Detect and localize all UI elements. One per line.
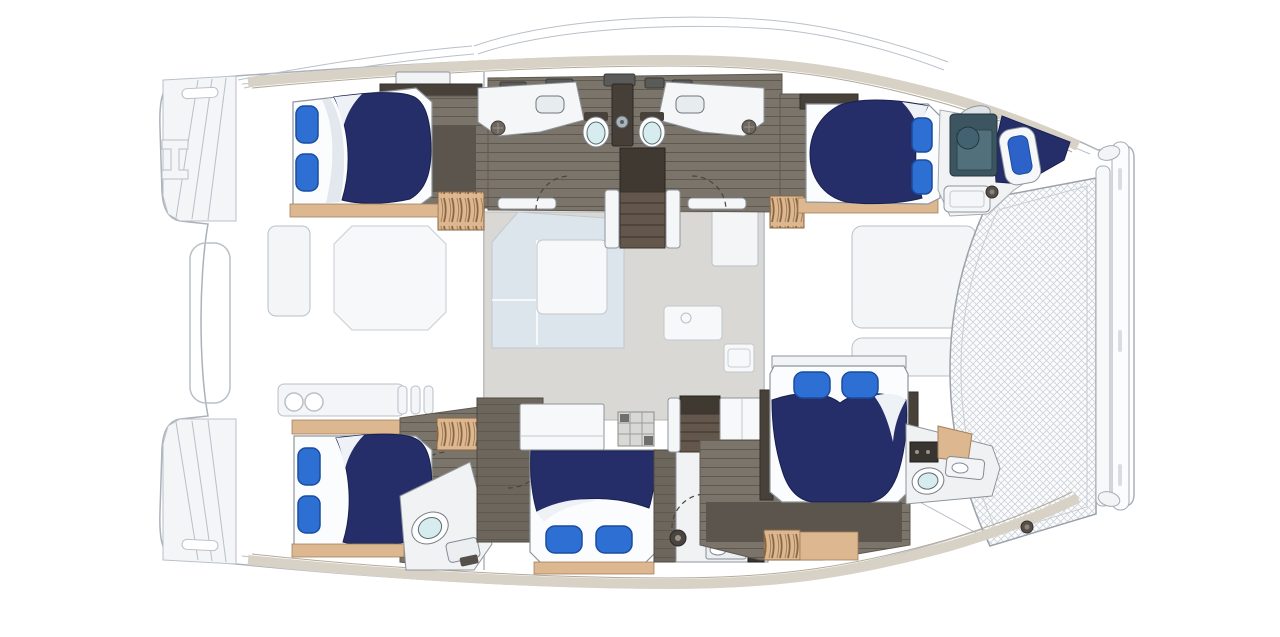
roof-line-top-1 [474,17,948,62]
crossbeam-inner [1096,166,1110,506]
bedBC-pillow-1 [546,526,582,553]
bedBL-pillow-2 [298,496,320,533]
cockpit-bench-port [268,226,310,316]
stairs-top-rail-left [605,190,619,248]
cockpit-table [334,226,446,330]
ac-grid-BC-cell-1 [620,414,629,422]
wood-strip-BC [534,562,654,574]
toilet-stbd-seat [643,122,661,144]
bedO-pillow-1 [794,372,830,398]
wood-strip-BL-bottom [292,544,404,557]
crew-hatch [944,186,990,212]
crossbeam-slot-3 [1118,464,1122,486]
deck-hatch-4 [645,78,664,88]
floor-plan-svg [0,0,1280,637]
headO-console-dot-2 [926,450,930,454]
crossbeam-slot-1 [1118,168,1122,190]
bedTR-pillow-1 [912,118,932,152]
floor-plan-stage [0,0,1280,637]
crossbeam-outer [1112,142,1129,510]
cockpit-grill-burner-2 [305,393,323,411]
stairs-bot2-landing [680,396,720,414]
cockpit-slat-2 [411,386,420,414]
headO-console-dot-1 [915,450,919,454]
shower-column [612,84,633,146]
basin-port [536,96,564,113]
desk-BC [520,404,604,450]
stairs-top-treads [620,192,665,248]
steps-companionway-1 [438,192,484,230]
transom-pad-bottom [182,539,218,551]
stairs-bot2-rail [668,398,680,452]
toilet-port-seat [587,122,605,144]
bedTR-duvet [810,100,928,204]
steps-companionway-3 [437,418,479,450]
saloon-table [537,240,607,314]
wood-strip-TL [290,204,438,217]
steps-companionway-4 [764,530,800,560]
stairs-top-landing [620,148,665,192]
ac-grid-BC-cell-2 [644,436,653,445]
crossbeam-slot-2 [1118,330,1122,352]
corridor-floor-top [780,94,808,210]
wood-floor-owner [800,532,858,560]
transom-pad-top [182,87,218,99]
stairs-top-rail-right [666,190,680,248]
floor-plan-shapes [160,17,1134,588]
cockpit-slat-1 [398,386,407,414]
crew-console-dial [957,127,979,149]
winch-fwd-port-dot [990,190,995,195]
galley-island [664,306,722,340]
divider-BC-right [654,450,676,562]
bedBC-pillow-2 [596,526,632,553]
cockpit-slat-3 [424,386,433,414]
bedTL-pillow-1 [296,106,318,143]
shower-knob-mid-dot [675,535,681,541]
bedTR-pillow-2 [912,160,932,194]
basin-stbd [676,96,704,113]
headO-console [910,442,938,462]
bedTL-pillow-2 [296,154,318,191]
bath-threshold-port [498,198,556,209]
shower-head-dot [620,120,624,124]
cockpit-grill-burner-1 [285,393,303,411]
bath-threshold-stbd [688,198,746,209]
bedO-pillow-2 [842,372,878,398]
bedBL-pillow-1 [298,448,320,485]
winch-fwd-stbd-dot [1025,525,1030,530]
